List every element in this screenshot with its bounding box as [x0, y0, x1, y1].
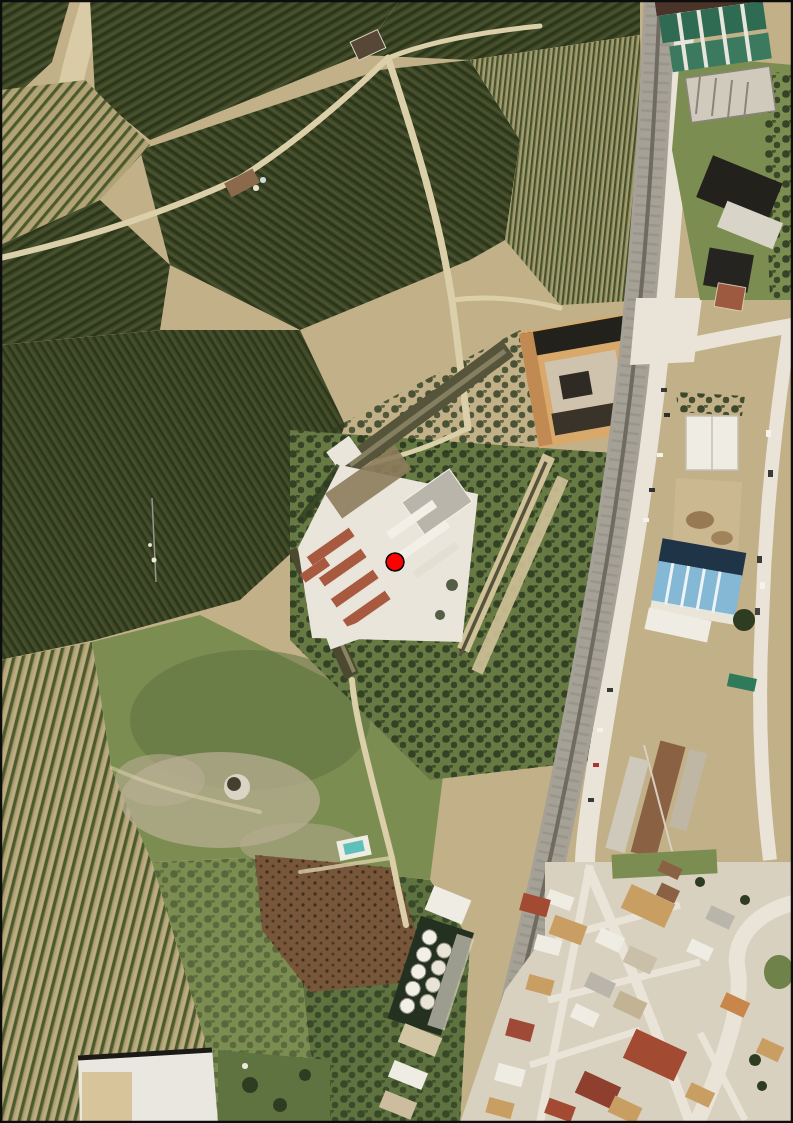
lawn — [218, 1050, 330, 1123]
tan-roof-section — [82, 1072, 132, 1123]
vehicle — [253, 185, 259, 191]
red-tile-house — [714, 283, 746, 311]
tree — [435, 610, 445, 620]
aerial-photo-canvas — [0, 0, 793, 1123]
u-building-inner — [559, 371, 593, 400]
pole-dot — [152, 558, 157, 563]
vehicle-2 — [260, 177, 266, 183]
aerial-map-view[interactable] — [0, 0, 793, 1123]
rocky-outcrop-2 — [115, 754, 205, 806]
pole-dot-2 — [148, 543, 152, 547]
location-marker[interactable] — [386, 553, 404, 571]
tree — [733, 609, 755, 631]
cistern-shadow — [227, 777, 241, 791]
roundabout-green — [764, 955, 793, 989]
road-junction — [630, 298, 702, 365]
tree — [446, 579, 458, 591]
southwest-farm — [78, 1048, 330, 1123]
tree-row — [676, 392, 745, 416]
